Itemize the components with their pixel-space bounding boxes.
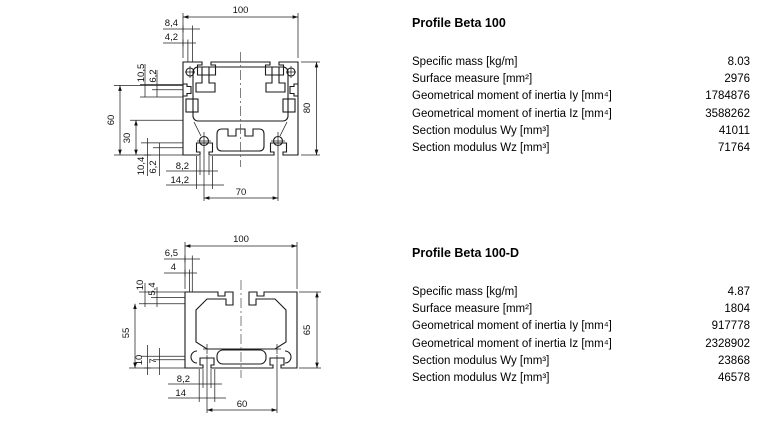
spec-label: Geometrical moment of inertia Iy [mm⁴]	[412, 318, 612, 335]
dim-left-b: 5,4	[147, 282, 158, 295]
spec-value: 8.03	[728, 54, 750, 71]
dim-top-a: 6,5	[165, 248, 178, 259]
dim-overall-width: 100	[233, 5, 249, 16]
dim-bottom-b: 14	[175, 388, 186, 399]
spec-title: Profile Beta 100	[412, 16, 750, 30]
spec-value: 4.87	[728, 284, 750, 301]
spec-value: 3588262	[705, 106, 750, 123]
spec-value: 1784876	[705, 88, 750, 105]
spec-value: 1804	[724, 301, 750, 318]
spec-label: Section modulus Wz [mm³]	[412, 370, 549, 387]
dimension-lines	[129, 242, 321, 413]
spec-label: Section modulus Wy [mm³]	[412, 123, 549, 140]
dim-bottom-left-b: 6,2	[148, 160, 159, 173]
dim-bottom-a: 8,2	[177, 374, 190, 385]
spec-label: Section modulus Wy [mm³]	[412, 353, 549, 370]
spec-row: Section modulus Wz [mm³] 71764	[412, 140, 750, 157]
dim-left-a: 10	[135, 280, 146, 291]
spec-row: Surface measure [mm²] 2976	[412, 71, 750, 88]
spec-label: Geometrical moment of inertia Iz [mm⁴]	[412, 106, 612, 123]
spec-label: Specific mass [kg/m]	[412, 284, 517, 301]
dim-bottom-width: 60	[237, 399, 248, 410]
spec-row: Section modulus Wz [mm³] 46578	[412, 370, 750, 387]
profile-outline	[185, 280, 297, 378]
spec-label: Geometrical moment of inertia Iz [mm⁴]	[412, 336, 612, 353]
spec-label: Specific mass [kg/m]	[412, 54, 517, 71]
dim-left-c: 30	[122, 133, 133, 144]
dim-overall-height: 65	[302, 325, 313, 336]
spec-row: Section modulus Wy [mm³] 41011	[412, 123, 750, 140]
dim-left-height: 55	[121, 328, 132, 339]
spec-table-beta-100: Profile Beta 100 Specific mass [kg/m] 8.…	[412, 16, 750, 157]
beta-100-cross-section-drawing: 100 8,4 4,2 10,5 6,2 60 30 10,4 6,2 8,2 …	[0, 0, 392, 215]
dim-bottom-a: 8,2	[176, 161, 189, 172]
spec-row: Geometrical moment of inertia Iy [mm⁴] 1…	[412, 88, 750, 105]
dim-left-b: 6,2	[148, 69, 159, 82]
dimension-labels: 100 8,4 4,2 10,5 6,2 60 30 10,4 6,2 8,2 …	[106, 5, 313, 198]
spec-value: 46578	[718, 370, 750, 387]
spec-row: Geometrical moment of inertia Iz [mm⁴] 3…	[412, 106, 750, 123]
spec-row: Specific mass [kg/m] 4.87	[412, 284, 750, 301]
spec-row: Geometrical moment of inertia Iz [mm⁴] 2…	[412, 336, 750, 353]
dim-overall-width: 100	[233, 234, 249, 245]
spec-table-beta-100-d: Profile Beta 100-D Specific mass [kg/m] …	[412, 246, 750, 387]
spec-title: Profile Beta 100-D	[412, 246, 750, 260]
dim-overall-height: 80	[302, 103, 313, 114]
spec-value: 23868	[718, 353, 750, 370]
spec-row: Geometrical moment of inertia Iy [mm⁴] 9…	[412, 318, 750, 335]
dim-bottom-left-a: 10	[134, 355, 145, 366]
dim-bottom-width: 70	[236, 187, 247, 198]
spec-label: Surface measure [mm²]	[412, 71, 532, 88]
spec-value: 2976	[724, 71, 750, 88]
spec-row: Surface measure [mm²] 1804	[412, 301, 750, 318]
dim-top-b: 4,2	[165, 32, 178, 43]
spec-label: Section modulus Wz [mm³]	[412, 140, 549, 157]
dim-top-b: 4	[171, 262, 176, 273]
spec-label: Surface measure [mm²]	[412, 301, 532, 318]
spec-row: Section modulus Wy [mm³] 23868	[412, 353, 750, 370]
datasheet-page: 100 8,4 4,2 10,5 6,2 60 30 10,4 6,2 8,2 …	[0, 0, 784, 429]
dimension-labels: 100 6,5 4 10 5,4 55 10 7 8,2 14 60 65	[121, 234, 313, 410]
spec-value: 917778	[712, 318, 750, 335]
dim-top-a: 8,4	[165, 18, 178, 29]
spec-value: 41011	[719, 123, 750, 140]
profile-outline	[183, 52, 298, 167]
dim-bottom-left-a: 10,4	[136, 157, 147, 176]
beta-100-d-cross-section-drawing: 100 6,5 4 10 5,4 55 10 7 8,2 14 60 65	[0, 215, 392, 429]
dim-bottom-b: 14,2	[171, 175, 190, 186]
spec-label: Geometrical moment of inertia Iy [mm⁴]	[412, 88, 612, 105]
spec-value: 71764	[718, 140, 750, 157]
spec-value: 2328902	[705, 336, 750, 353]
spec-row: Specific mass [kg/m] 8.03	[412, 54, 750, 71]
dim-left-height: 60	[106, 115, 117, 126]
dim-bottom-left-b: 7	[148, 358, 159, 363]
dim-left-a: 10,5	[136, 64, 147, 83]
